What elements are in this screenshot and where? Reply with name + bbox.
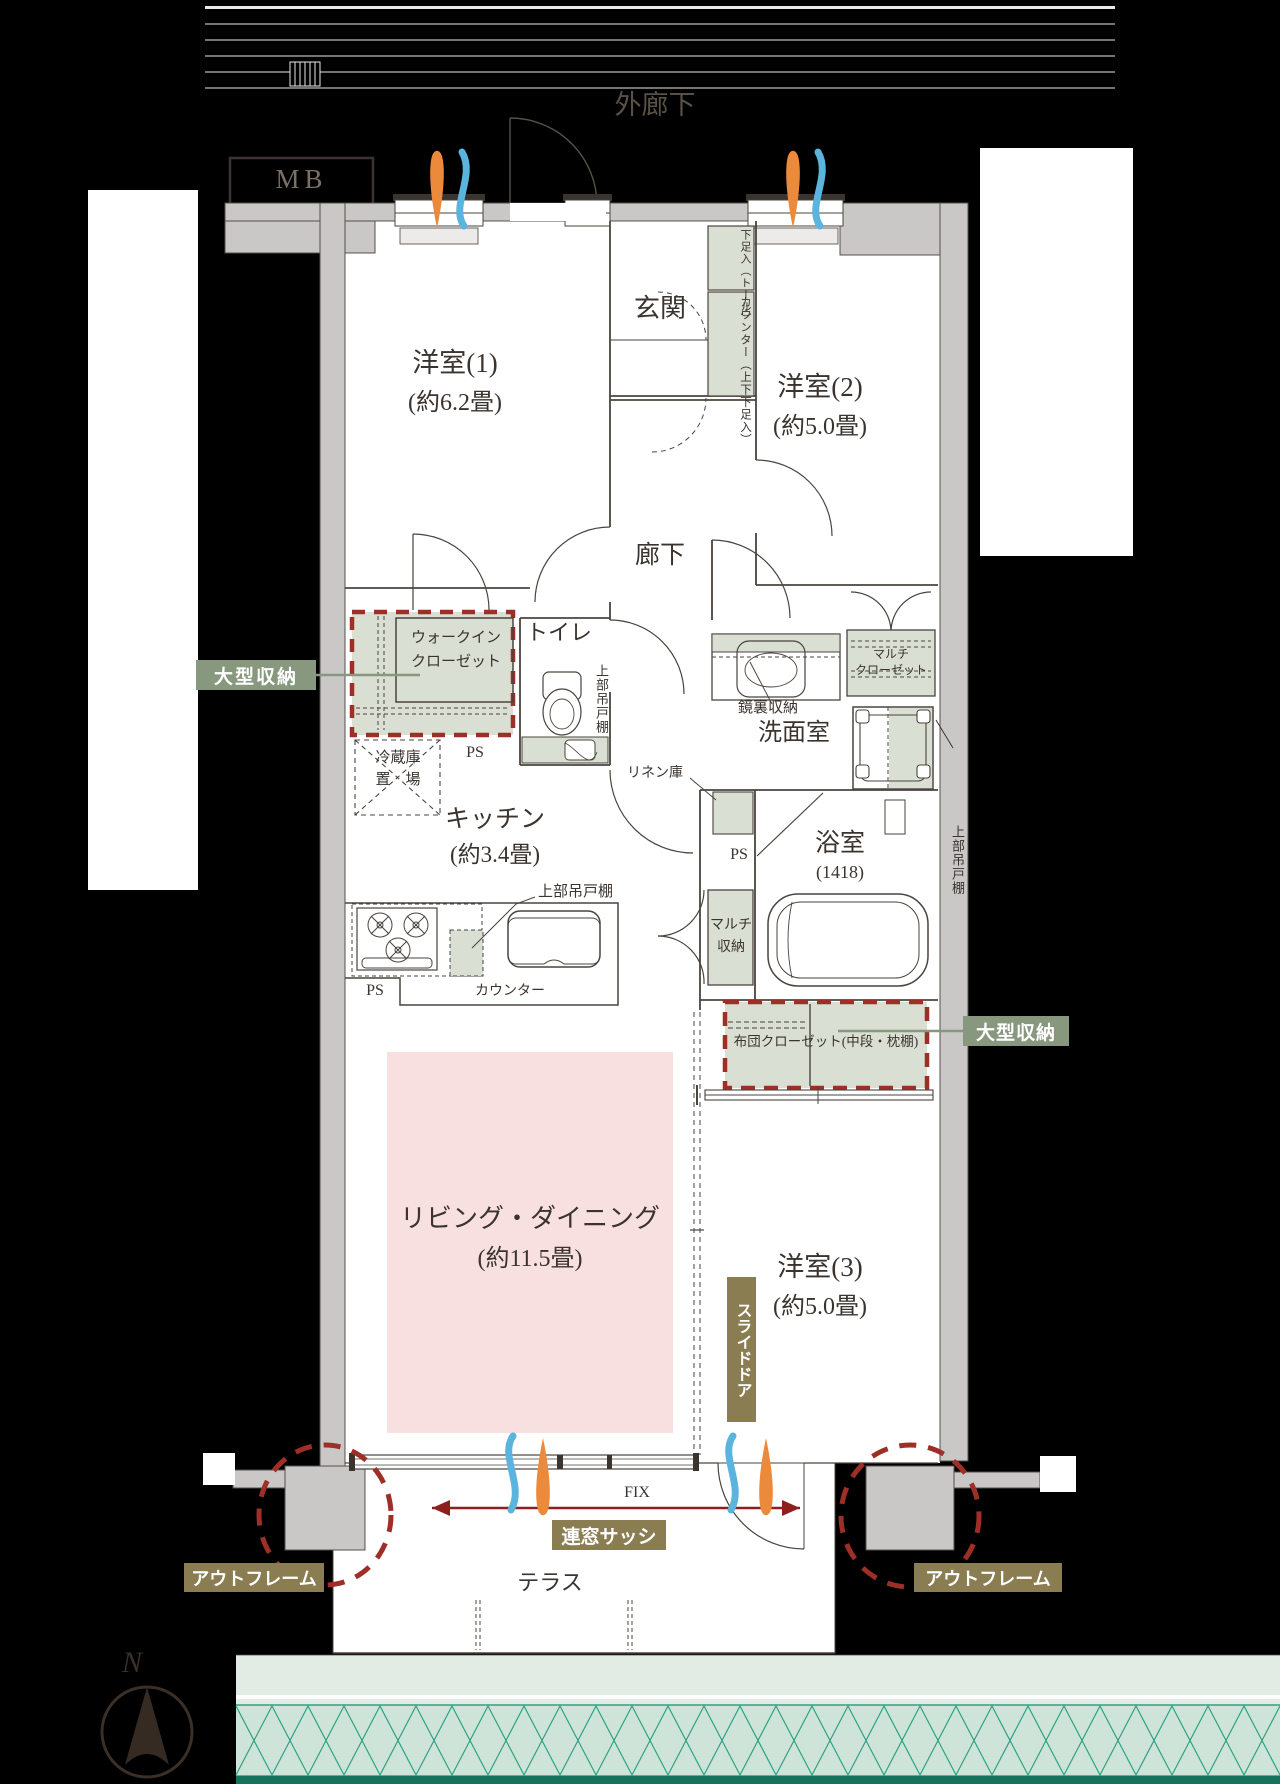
outer-corridor-label: 外廊下 xyxy=(590,90,720,121)
entrance-label: 玄関 xyxy=(610,294,710,324)
multi-storage-box xyxy=(708,890,753,985)
kitchen-size: (約3.4畳) xyxy=(420,842,570,868)
washroom-label: 洗面室 xyxy=(734,720,854,748)
large-storage-badge-right: 大型収納 xyxy=(963,1016,1069,1046)
kitchen-label: キッチン xyxy=(420,806,570,835)
floorplan-page: 外廊下 MB 洋室(1) (約6.2畳) 洋室(2) (約5.0畳) 玄関 廊下… xyxy=(0,0,1280,1784)
wall-cap-left xyxy=(203,1453,235,1485)
multi-storage-label-2: 収納 xyxy=(706,940,756,956)
bathroom-size: (1418) xyxy=(775,862,905,883)
room1-size: (約6.2畳) xyxy=(345,390,565,418)
large-storage-badge-left: 大型収納 xyxy=(196,660,316,690)
walkin-label-1: ウォークイン xyxy=(386,630,526,647)
fix-window-label: FIX xyxy=(615,1484,659,1502)
mirror-storage-label: 鏡裏収納 xyxy=(738,700,848,717)
upper-cabinet-right-label: 上部吊戸棚 xyxy=(942,752,964,967)
ps-label-2: PS xyxy=(722,846,756,864)
living-dining-area xyxy=(387,1052,673,1433)
linen-label: リネン庫 xyxy=(618,766,692,782)
exterior-corridor-door xyxy=(510,118,597,205)
wall-cap-right xyxy=(1040,1456,1076,1492)
multi-closet-label-2: クローゼット xyxy=(848,664,934,678)
fridge-label-1: 冷蔵庫 xyxy=(356,750,440,767)
fridge-label-2: 置 場 xyxy=(356,772,440,789)
hallway-label: 廊下 xyxy=(600,542,720,571)
room1-label: 洋室(1) xyxy=(345,348,565,379)
compass-n-label: N xyxy=(122,1646,142,1680)
bottom-windows xyxy=(349,1453,699,1471)
multi-sash-badge: 連窓サッシ xyxy=(552,1520,666,1550)
compass-icon xyxy=(102,1687,192,1777)
bathroom-label: 浴室 xyxy=(775,830,905,859)
walkin-label-2: クローゼット xyxy=(386,654,526,671)
multi-closet-label-1: マルチ xyxy=(848,648,934,662)
shoe-tall-label: 下足入（トール） xyxy=(710,229,752,289)
upper-cabinet-toilet-label: 上部吊戸棚 xyxy=(588,636,608,761)
out-frame-badge-right: アウトフレーム xyxy=(914,1563,1062,1592)
upper-cabinet-kitchen-label: 上部吊戸棚 xyxy=(538,884,648,901)
out-frame-badge-left: アウトフレーム xyxy=(184,1563,324,1592)
neighbor-right xyxy=(980,148,1133,556)
ps-label-1: PS xyxy=(458,744,492,762)
planting-strip xyxy=(236,1655,1280,1784)
neighbor-left xyxy=(88,190,198,890)
site-boundary-lines xyxy=(205,6,1115,88)
meter-box-label: MB xyxy=(230,164,373,195)
terrace-label: テラス xyxy=(495,1570,605,1595)
futon-closet-label: 布団クローゼット(中段・枕棚) xyxy=(728,1034,924,1050)
ps-label-3: PS xyxy=(358,982,392,1000)
living-dining-label: リビング・ダイニング xyxy=(400,1204,660,1234)
living-dining-size: (約11.5畳) xyxy=(400,1246,660,1274)
multi-storage-label-1: マルチ xyxy=(706,918,756,934)
shoe-counter-label: カウンター（上下下足入） xyxy=(710,296,752,394)
slide-door-badge: スライドドア xyxy=(727,1277,756,1422)
counter-label: カウンター xyxy=(455,984,565,1000)
